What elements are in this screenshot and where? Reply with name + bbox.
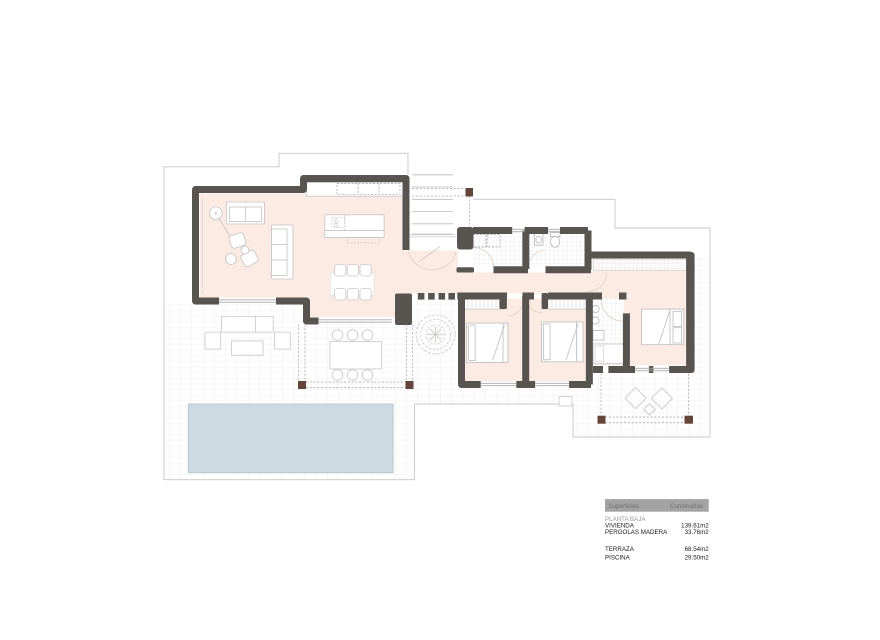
svg-text:33.76m2: 33.76m2	[685, 529, 710, 536]
svg-text:TERRAZA: TERRAZA	[605, 546, 635, 553]
svg-text:PISCINA: PISCINA	[605, 554, 631, 561]
svg-text:29.50m2: 29.50m2	[685, 554, 710, 561]
svg-text:Superficies: Superficies	[609, 503, 640, 510]
svg-text:68.54m2: 68.54m2	[685, 546, 710, 553]
svg-text:PERGOLAS MADERA: PERGOLAS MADERA	[605, 529, 668, 536]
svg-text:Construidas: Construidas	[670, 503, 703, 510]
